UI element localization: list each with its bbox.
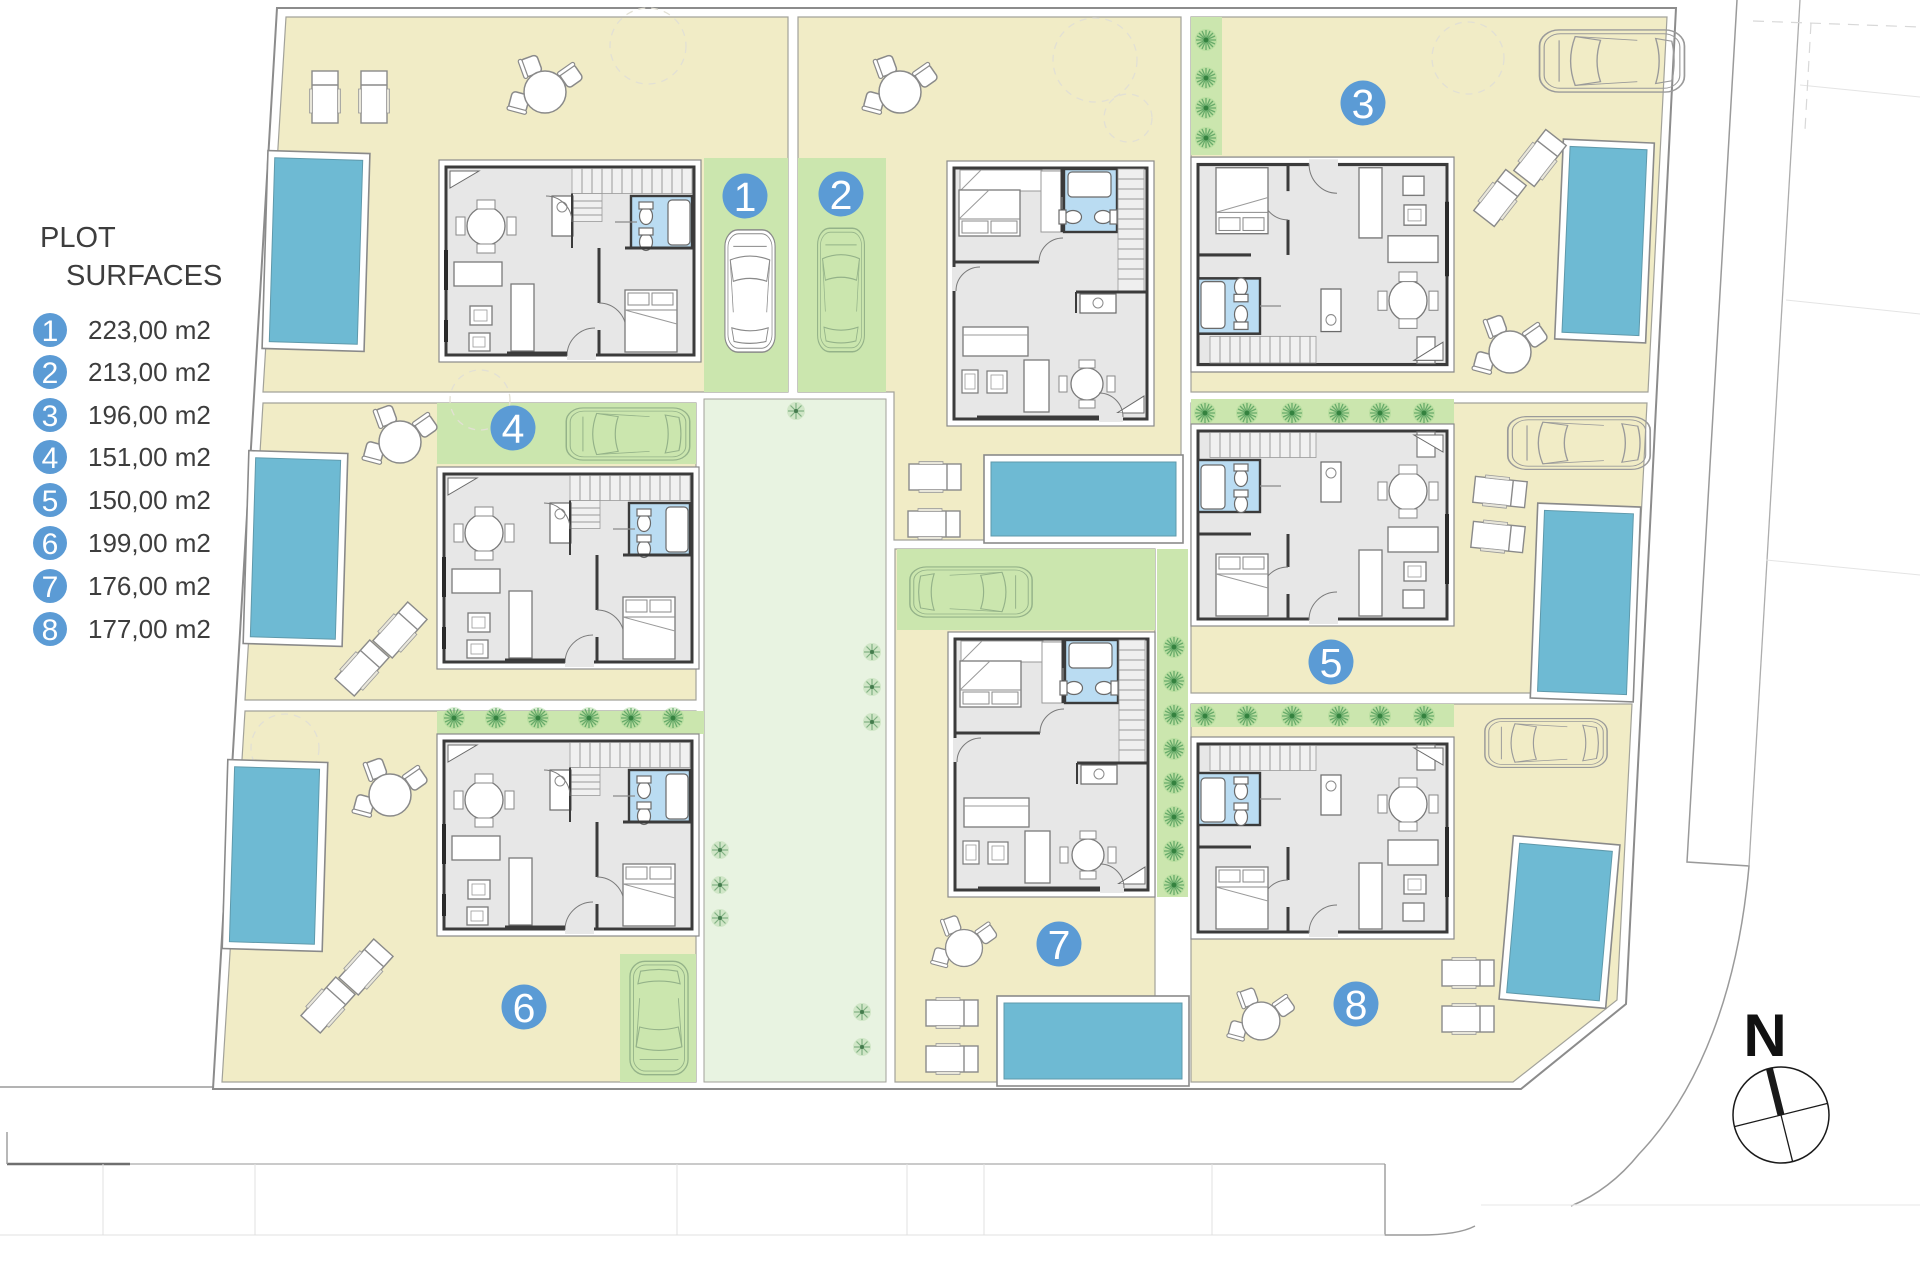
svg-text:2: 2 bbox=[830, 172, 853, 218]
svg-text:2: 2 bbox=[42, 357, 59, 390]
svg-text:N: N bbox=[1743, 1002, 1786, 1069]
svg-text:8: 8 bbox=[42, 614, 59, 647]
svg-text:SURFACES: SURFACES bbox=[66, 260, 222, 292]
svg-text:PLOT: PLOT bbox=[40, 222, 116, 254]
svg-text:1: 1 bbox=[42, 315, 59, 348]
svg-text:151,00 m2: 151,00 m2 bbox=[88, 442, 211, 472]
svg-text:223,00 m2: 223,00 m2 bbox=[88, 315, 211, 345]
svg-text:3: 3 bbox=[1352, 81, 1375, 127]
svg-text:150,00 m2: 150,00 m2 bbox=[88, 485, 211, 515]
svg-text:7: 7 bbox=[1048, 922, 1071, 968]
svg-text:8: 8 bbox=[1345, 982, 1368, 1028]
svg-text:1: 1 bbox=[734, 174, 757, 220]
svg-text:177,00 m2: 177,00 m2 bbox=[88, 614, 211, 644]
svg-text:199,00 m2: 199,00 m2 bbox=[88, 528, 211, 558]
svg-text:196,00 m2: 196,00 m2 bbox=[88, 400, 211, 430]
svg-text:5: 5 bbox=[42, 485, 59, 518]
svg-text:176,00 m2: 176,00 m2 bbox=[88, 571, 211, 601]
svg-text:6: 6 bbox=[513, 985, 536, 1031]
svg-text:4: 4 bbox=[502, 406, 525, 452]
svg-text:4: 4 bbox=[42, 442, 59, 475]
svg-text:3: 3 bbox=[42, 400, 59, 433]
svg-text:7: 7 bbox=[42, 571, 59, 604]
svg-text:5: 5 bbox=[1320, 640, 1343, 686]
svg-text:213,00 m2: 213,00 m2 bbox=[88, 357, 211, 387]
svg-text:6: 6 bbox=[42, 528, 59, 561]
